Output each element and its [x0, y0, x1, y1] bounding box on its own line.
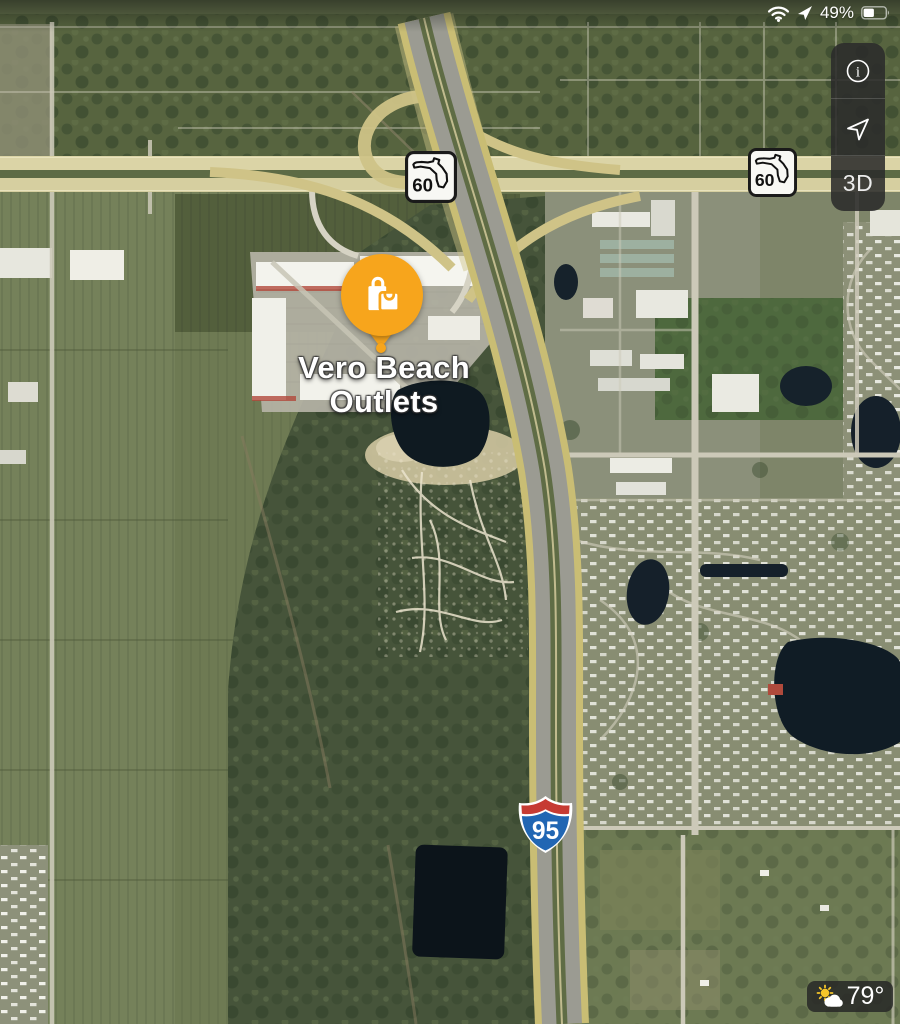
route-shield-fl60-east: 60	[748, 148, 797, 202]
apple-maps-satellite-view: 49% i 3D Vero Beach	[0, 0, 900, 1024]
status-bar: 49%	[767, 0, 890, 26]
poi-pin[interactable]	[341, 254, 423, 336]
battery-icon	[861, 6, 890, 20]
svg-text:95: 95	[532, 818, 559, 845]
svg-text:60: 60	[412, 175, 433, 196]
shopping-bags-icon	[359, 272, 405, 318]
poi-label-line2: Outlets	[298, 385, 470, 419]
svg-text:60: 60	[755, 170, 775, 190]
info-circle-icon: i	[844, 57, 872, 85]
wifi-icon	[767, 5, 790, 22]
map-controls-panel: i 3D	[831, 43, 885, 211]
interstate-shield-icon: 95	[517, 795, 574, 854]
navigation-arrow-icon	[843, 112, 873, 142]
poi-label-line1: Vero Beach	[298, 351, 470, 385]
florida-route-shield-icon: 60	[405, 151, 457, 203]
info-button[interactable]: i	[831, 43, 885, 98]
temperature-value: 79°	[847, 981, 885, 1012]
route-shield-fl60-west: 60	[405, 151, 457, 208]
poi-label[interactable]: Vero Beach Outlets	[298, 351, 470, 419]
toggle-3d-button[interactable]: 3D	[831, 155, 885, 211]
weather-widget: 79°	[807, 981, 893, 1012]
locate-me-button[interactable]	[831, 98, 885, 154]
svg-text:i: i	[856, 64, 860, 80]
route-shield-i95: 95	[517, 795, 574, 859]
partly-cloudy-icon	[816, 984, 843, 1010]
florida-route-shield-icon: 60	[748, 148, 797, 197]
battery-percent: 49%	[820, 3, 854, 23]
location-arrow-icon	[797, 5, 813, 21]
southwest-subdivision	[0, 845, 48, 1024]
